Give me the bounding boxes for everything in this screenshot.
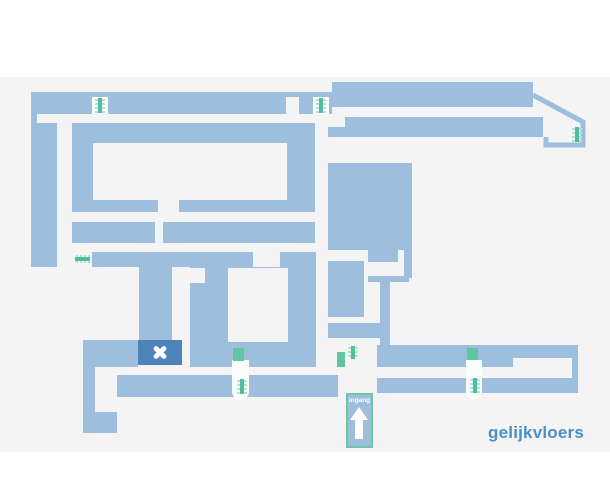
corridor-cutout [377, 367, 513, 378]
stairs-icon [572, 127, 582, 142]
floor-label: gelijkvloers [488, 423, 584, 443]
map-room-block [163, 222, 315, 243]
map-funnel-outline [520, 85, 595, 155]
room-cutout [228, 268, 288, 342]
map-vertical-bar [380, 276, 390, 345]
door-marker-green [337, 352, 345, 367]
floorplan-page: ingang gelijkvloers [0, 0, 610, 500]
map-top-right-block [332, 82, 533, 107]
notch-cutout [286, 97, 299, 114]
stairs-icon [470, 378, 480, 393]
location-marker [138, 340, 182, 365]
map-right-block-tab [368, 250, 398, 262]
map-right-band-step [328, 127, 345, 137]
map-vertical-corridor [139, 267, 172, 343]
corridor-cutout [72, 212, 315, 222]
stairs-icon [348, 346, 358, 359]
map-room-block [72, 222, 155, 243]
entrance-badge: ingang [346, 393, 373, 448]
map-room-b [328, 261, 364, 317]
door-marker-green [467, 348, 478, 360]
stairs-icon [95, 98, 105, 113]
notch-cutout [190, 268, 205, 283]
entrance-label: ingang [348, 397, 371, 405]
map-right-block [328, 163, 412, 250]
map-right-band [345, 117, 543, 137]
stairs-icon [316, 98, 326, 113]
map-right-block-stub [404, 250, 412, 278]
map-lower-corridor-left [117, 375, 338, 397]
corridor-cutout [57, 243, 315, 252]
map-connector-band [328, 323, 382, 338]
door-marker-green [233, 348, 244, 361]
stairs-icon [75, 255, 90, 263]
arrow-up-icon [348, 407, 371, 441]
stairs-icon [237, 379, 247, 394]
map-corridor-band [280, 252, 316, 267]
room-cutout [513, 358, 572, 378]
floorplan-map: ingang gelijkvloers [0, 0, 610, 500]
map-hook-corridor [83, 340, 95, 433]
map-hook-foot [95, 412, 117, 433]
map-thin-connector [368, 276, 409, 282]
map-corridor-band [92, 252, 253, 267]
corridor-cutout [37, 114, 332, 123]
room-cutout [93, 143, 287, 200]
map-block-left [95, 340, 138, 367]
